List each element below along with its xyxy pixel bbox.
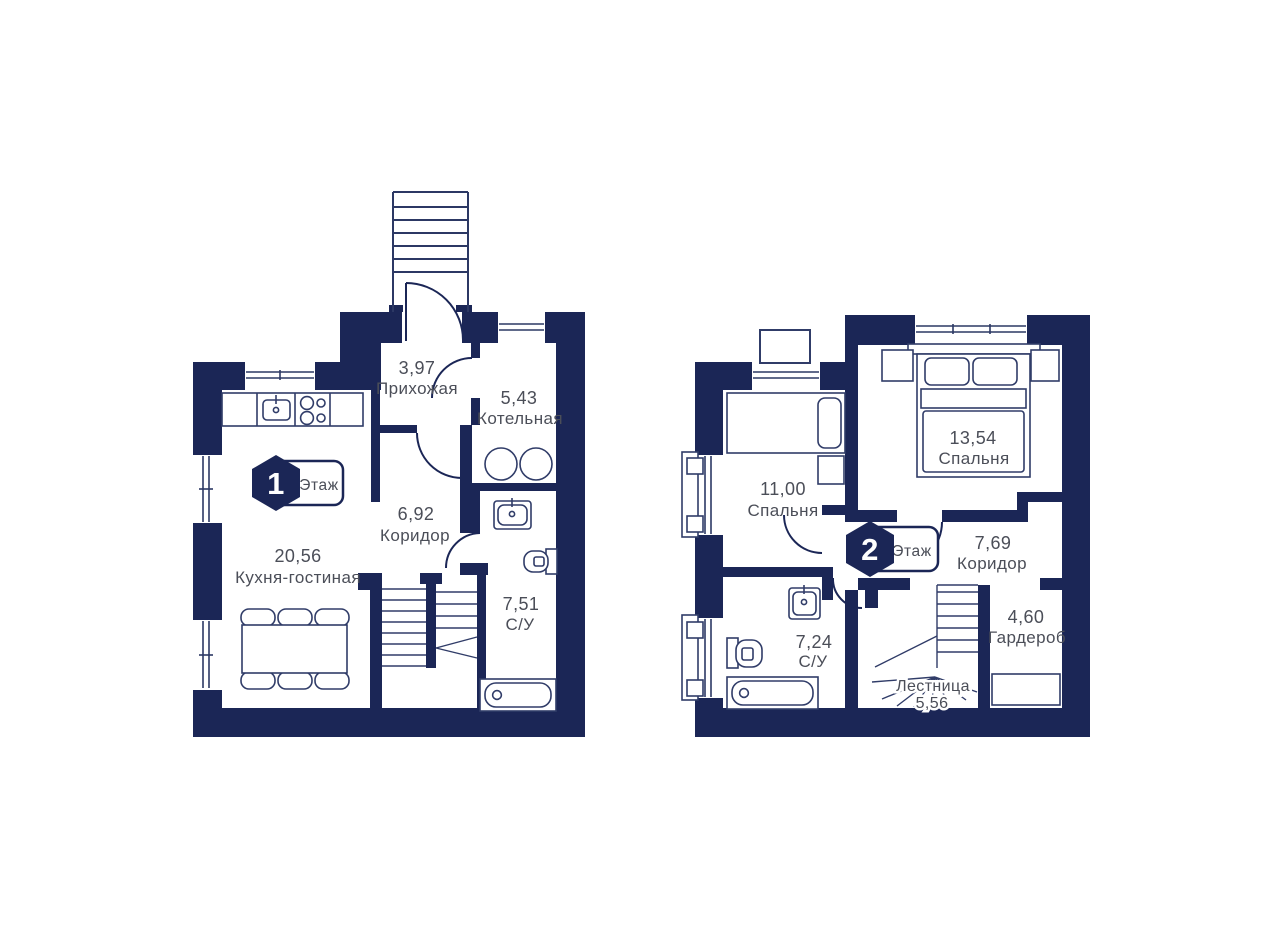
chair-icon bbox=[278, 672, 312, 689]
floor1-plan: 3,97 Прихожая 5,43 Котельная 6,92 Коридо… bbox=[193, 192, 585, 737]
floorplan-drawing: 3,97 Прихожая 5,43 Котельная 6,92 Коридо… bbox=[0, 0, 1280, 933]
floor2-badge: Этаж 2 bbox=[846, 521, 938, 577]
kitchen-top-window bbox=[245, 362, 315, 390]
room-area: 7,51 bbox=[503, 594, 540, 614]
room-area: 7,24 bbox=[796, 632, 833, 652]
pillow-icon bbox=[818, 398, 841, 448]
floor1-badge: Этаж 1 bbox=[252, 455, 343, 511]
bedroom-small-door-arc bbox=[784, 515, 822, 553]
bedroom-big-top-window bbox=[915, 315, 1027, 345]
room-name: С/У bbox=[506, 615, 535, 634]
nightstand-icon bbox=[1031, 350, 1059, 381]
floorplan-page: 3,97 Прихожая 5,43 Котельная 6,92 Коридо… bbox=[0, 0, 1280, 933]
room-name: Кухня-гостиная bbox=[235, 568, 361, 587]
blanket-fold bbox=[921, 389, 1026, 408]
boiler-tanks-icon bbox=[485, 448, 552, 480]
left-window-assembly-1 bbox=[682, 452, 723, 537]
bedroom-small-top-window bbox=[752, 362, 820, 390]
boiler-top-window bbox=[498, 312, 545, 343]
floor-badge-label: Этаж bbox=[892, 543, 931, 560]
kitchen-counter bbox=[222, 393, 363, 426]
bathroom-door-arc bbox=[446, 533, 480, 568]
left-window-assembly-2 bbox=[682, 615, 723, 700]
hallway-door-arc bbox=[417, 433, 462, 478]
bath-sink-icon bbox=[494, 498, 531, 529]
floor-badge-number: 1 bbox=[267, 466, 285, 501]
chair-icon bbox=[241, 609, 275, 626]
room-area: 5,56 bbox=[916, 695, 949, 712]
room-area: 7,69 bbox=[975, 533, 1012, 553]
room-name: Лестница bbox=[896, 678, 970, 695]
room-name: С/У bbox=[799, 652, 828, 671]
room-area: 20,56 bbox=[274, 546, 321, 566]
room-area: 3,97 bbox=[399, 358, 436, 378]
headboard bbox=[908, 344, 1040, 354]
bathtub-icon bbox=[480, 679, 556, 711]
room-area: 11,00 bbox=[760, 479, 806, 499]
nightstand-icon bbox=[818, 456, 844, 484]
chimney-block bbox=[760, 330, 810, 363]
room-name: Спальня bbox=[747, 501, 818, 520]
chair-icon bbox=[278, 609, 312, 626]
chair-icon bbox=[241, 672, 275, 689]
pillow-icon bbox=[925, 358, 969, 385]
chair-icon bbox=[315, 609, 349, 626]
table-top bbox=[242, 625, 347, 673]
single-bed bbox=[727, 393, 845, 484]
kitchen-left-window-2 bbox=[193, 620, 222, 690]
dining-table bbox=[241, 609, 349, 689]
entrance-porch-steps bbox=[393, 192, 468, 312]
room-name: Гардероб bbox=[988, 628, 1066, 647]
room-name: Коридор bbox=[957, 554, 1027, 573]
nightstand-icon bbox=[882, 350, 913, 381]
room-name: Коридор bbox=[380, 526, 450, 545]
wardrobe-shelf bbox=[992, 674, 1060, 705]
floor2-plan: 11,00 Спальня 13,54 Спальня 7,69 Коридор… bbox=[682, 315, 1090, 737]
bathtub-icon bbox=[727, 677, 818, 709]
room-area: 6,92 bbox=[398, 504, 435, 524]
room-name: Котельная bbox=[477, 409, 563, 428]
toilet-icon bbox=[727, 638, 762, 668]
room-area: 13,54 bbox=[949, 428, 996, 448]
kitchen-left-window-1 bbox=[193, 455, 222, 523]
chair-icon bbox=[315, 672, 349, 689]
room-name: Прихожая bbox=[376, 379, 458, 398]
bath-sink-icon bbox=[789, 585, 820, 619]
floor-badge-label: Этаж bbox=[299, 477, 338, 494]
room-area: 5,43 bbox=[501, 388, 538, 408]
floor-badge-number: 2 bbox=[861, 532, 879, 567]
pillow-icon bbox=[973, 358, 1017, 385]
toilet-icon bbox=[524, 549, 557, 574]
entrance-door-gap bbox=[402, 312, 462, 343]
room-name: Спальня bbox=[938, 449, 1009, 468]
room-area: 4,60 bbox=[1008, 607, 1045, 627]
